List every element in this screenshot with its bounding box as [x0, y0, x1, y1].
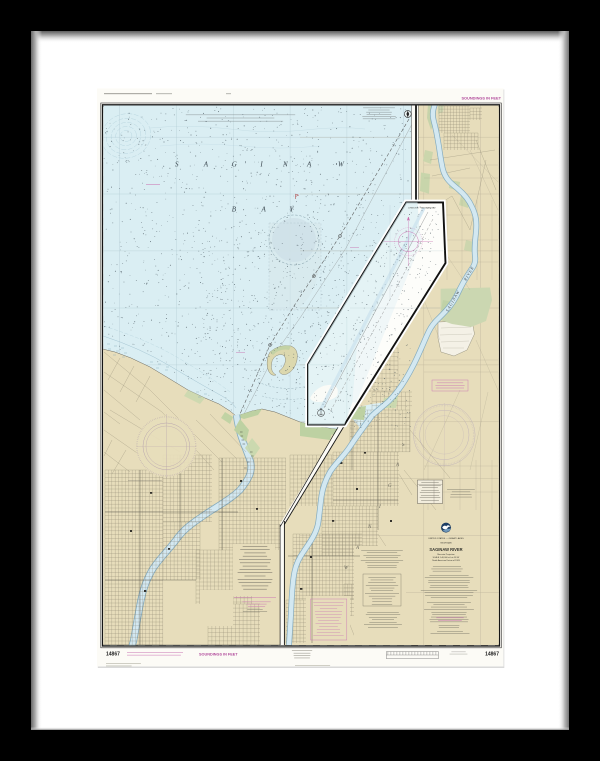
svg-text:LINWOOD · SAGINAW BAY: LINWOOD · SAGINAW BAY: [408, 207, 436, 210]
svg-text:S: S: [175, 161, 179, 169]
svg-text:N: N: [367, 525, 372, 530]
svg-text:SOUNDINGS IN FEET: SOUNDINGS IN FEET: [199, 653, 238, 657]
svg-text:SAGINAW RIVER: SAGINAW RIVER: [429, 547, 462, 552]
svg-text:MICHIGAN: MICHIGAN: [441, 542, 452, 545]
svg-text:UNITED STATES — GREAT LAKES: UNITED STATES — GREAT LAKES: [428, 537, 464, 540]
svg-text:Mercator Projection: Mercator Projection: [437, 553, 454, 556]
svg-text:SOUNDINGS IN FEET: SOUNDINGS IN FEET: [461, 96, 501, 101]
svg-text:I: I: [378, 505, 381, 510]
svg-text:B: B: [232, 206, 237, 214]
svg-text:G: G: [388, 484, 392, 489]
svg-text:A: A: [203, 161, 209, 169]
svg-text:SCALE 1:40,000 at Lat 43°40': SCALE 1:40,000 at Lat 43°40': [433, 556, 460, 559]
svg-text:G: G: [232, 161, 237, 169]
svg-text:14867: 14867: [485, 652, 499, 658]
svg-text:A: A: [306, 161, 312, 169]
svg-text:14867: 14867: [106, 652, 120, 658]
svg-text:A: A: [261, 206, 267, 214]
svg-text:North American Datum of 1983: North American Datum of 1983: [432, 559, 460, 562]
